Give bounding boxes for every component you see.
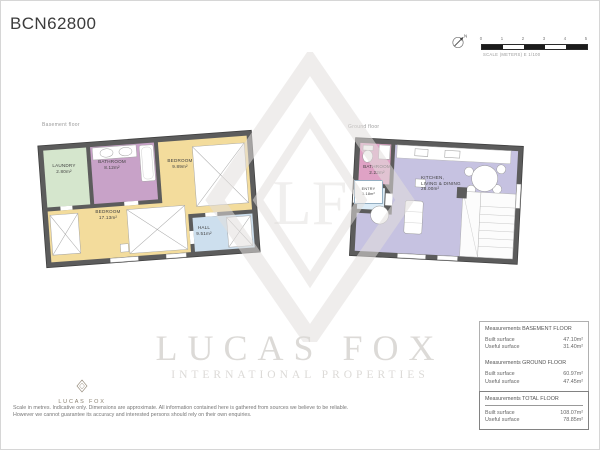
page-title: BCN62800 [10,14,96,34]
table-row: Built surface47.10m² [485,337,583,344]
north-arrow-icon: N [450,32,470,50]
tick-1: 1 [501,36,503,41]
floorplan-sheet: BCN62800 N 0 1 2 3 4 5 SCALE (METERS) E … [0,0,600,450]
scale-bar [481,44,588,50]
measurements-box-total: Measurements TOTAL FLOOR Built surface10… [479,391,589,430]
table-row: Useful surface47.45m² [485,379,583,386]
tick-4: 4 [564,36,566,41]
room-label-kitchen-living: KITCHEN, LIVING & DINING 28.00m² [421,169,477,198]
ground-floor-label: Ground floor [348,124,379,130]
room-label-bathroom-basement: BATHROOM 8.12m² [90,153,134,176]
ground-floor-plan [342,130,532,288]
table-row: Built surface108.07m² [485,410,583,417]
room-label-bathroom-ground: BATHROOM 2.22m² [354,158,400,181]
disclaimer-line-1: Scale in metres. Indicative only. Dimens… [13,405,443,412]
sink [415,149,428,157]
room-label-bedroom-small: BEDROOM 9.89m² [160,152,200,175]
measurements-box-floors: Measurements BASEMENT FLOOR Built surfac… [479,321,589,392]
tick-5: 5 [585,36,587,41]
basement-floor-label: Basement floor [42,122,80,128]
tick-2: 2 [522,36,524,41]
tick-3: 3 [543,36,545,41]
measurements-ground-title: Measurements GROUND FLOOR [485,360,583,366]
measurements-total-title: Measurements TOTAL FLOOR [485,396,583,406]
table-row: Useful surface31.40m² [485,344,583,351]
hob [445,150,460,158]
measurements-table: Measurements BASEMENT FLOOR Built surfac… [479,321,589,430]
lucasfox-diamond-icon [76,379,88,393]
basement-floor-plan [34,122,264,272]
svg-text:LF: LF [273,167,348,238]
table-row: Built surface60.97m² [485,371,583,378]
sofa [404,200,424,234]
measurements-basement-title: Measurements BASEMENT FLOOR [485,326,583,332]
room-label-bedroom-large: BEDROOM 17.13m² [84,203,132,226]
tick-0: 0 [480,36,482,41]
disclaimer-line-2: However we cannot guarantee its accuracy… [13,412,443,419]
table-row: Useful surface78.85m² [485,417,583,424]
scale-caption: SCALE (METERS) E 1/100 [483,52,540,57]
room-label-entry: ENTRY 1.18m² [354,180,383,204]
room-label-hall: HALL 9.51m² [184,219,224,242]
room-label-laundry: LAUNDRY 2.80m² [44,157,84,180]
svg-text:N: N [464,34,467,39]
scale-tick-labels: 0 1 2 3 4 5 [481,36,587,42]
lucasfox-logo: LUCAS FOX [47,379,117,405]
